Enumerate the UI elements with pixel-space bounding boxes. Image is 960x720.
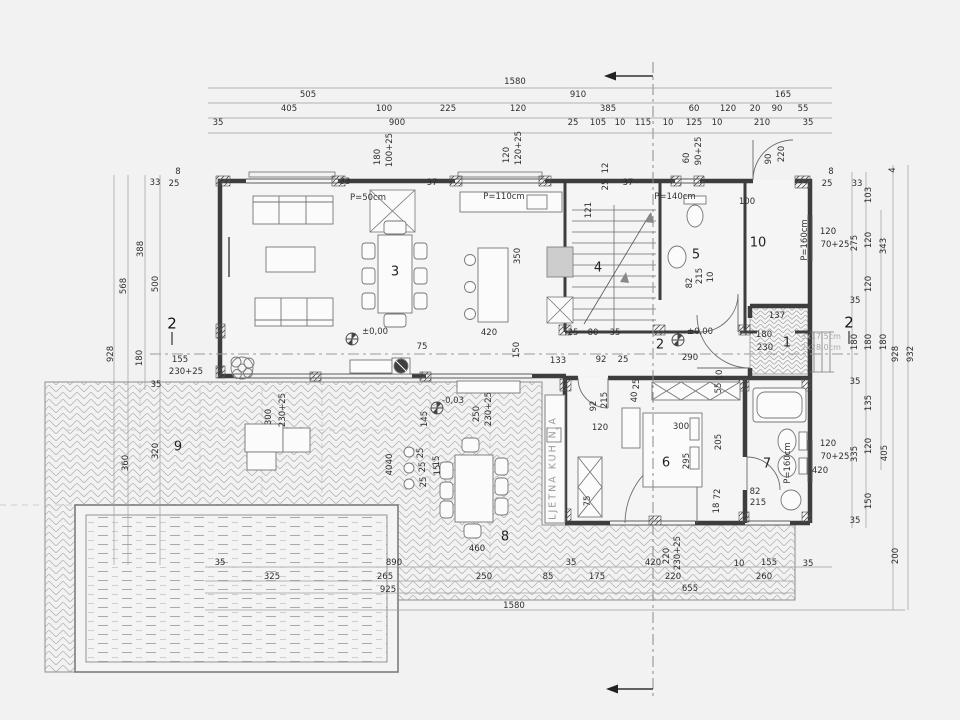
entry-hatch (750, 306, 808, 374)
plan-drawing (0, 0, 960, 720)
floor-plan-canvas: 1580505910165405100225120385601202090553… (0, 0, 960, 720)
pool (75, 505, 398, 672)
